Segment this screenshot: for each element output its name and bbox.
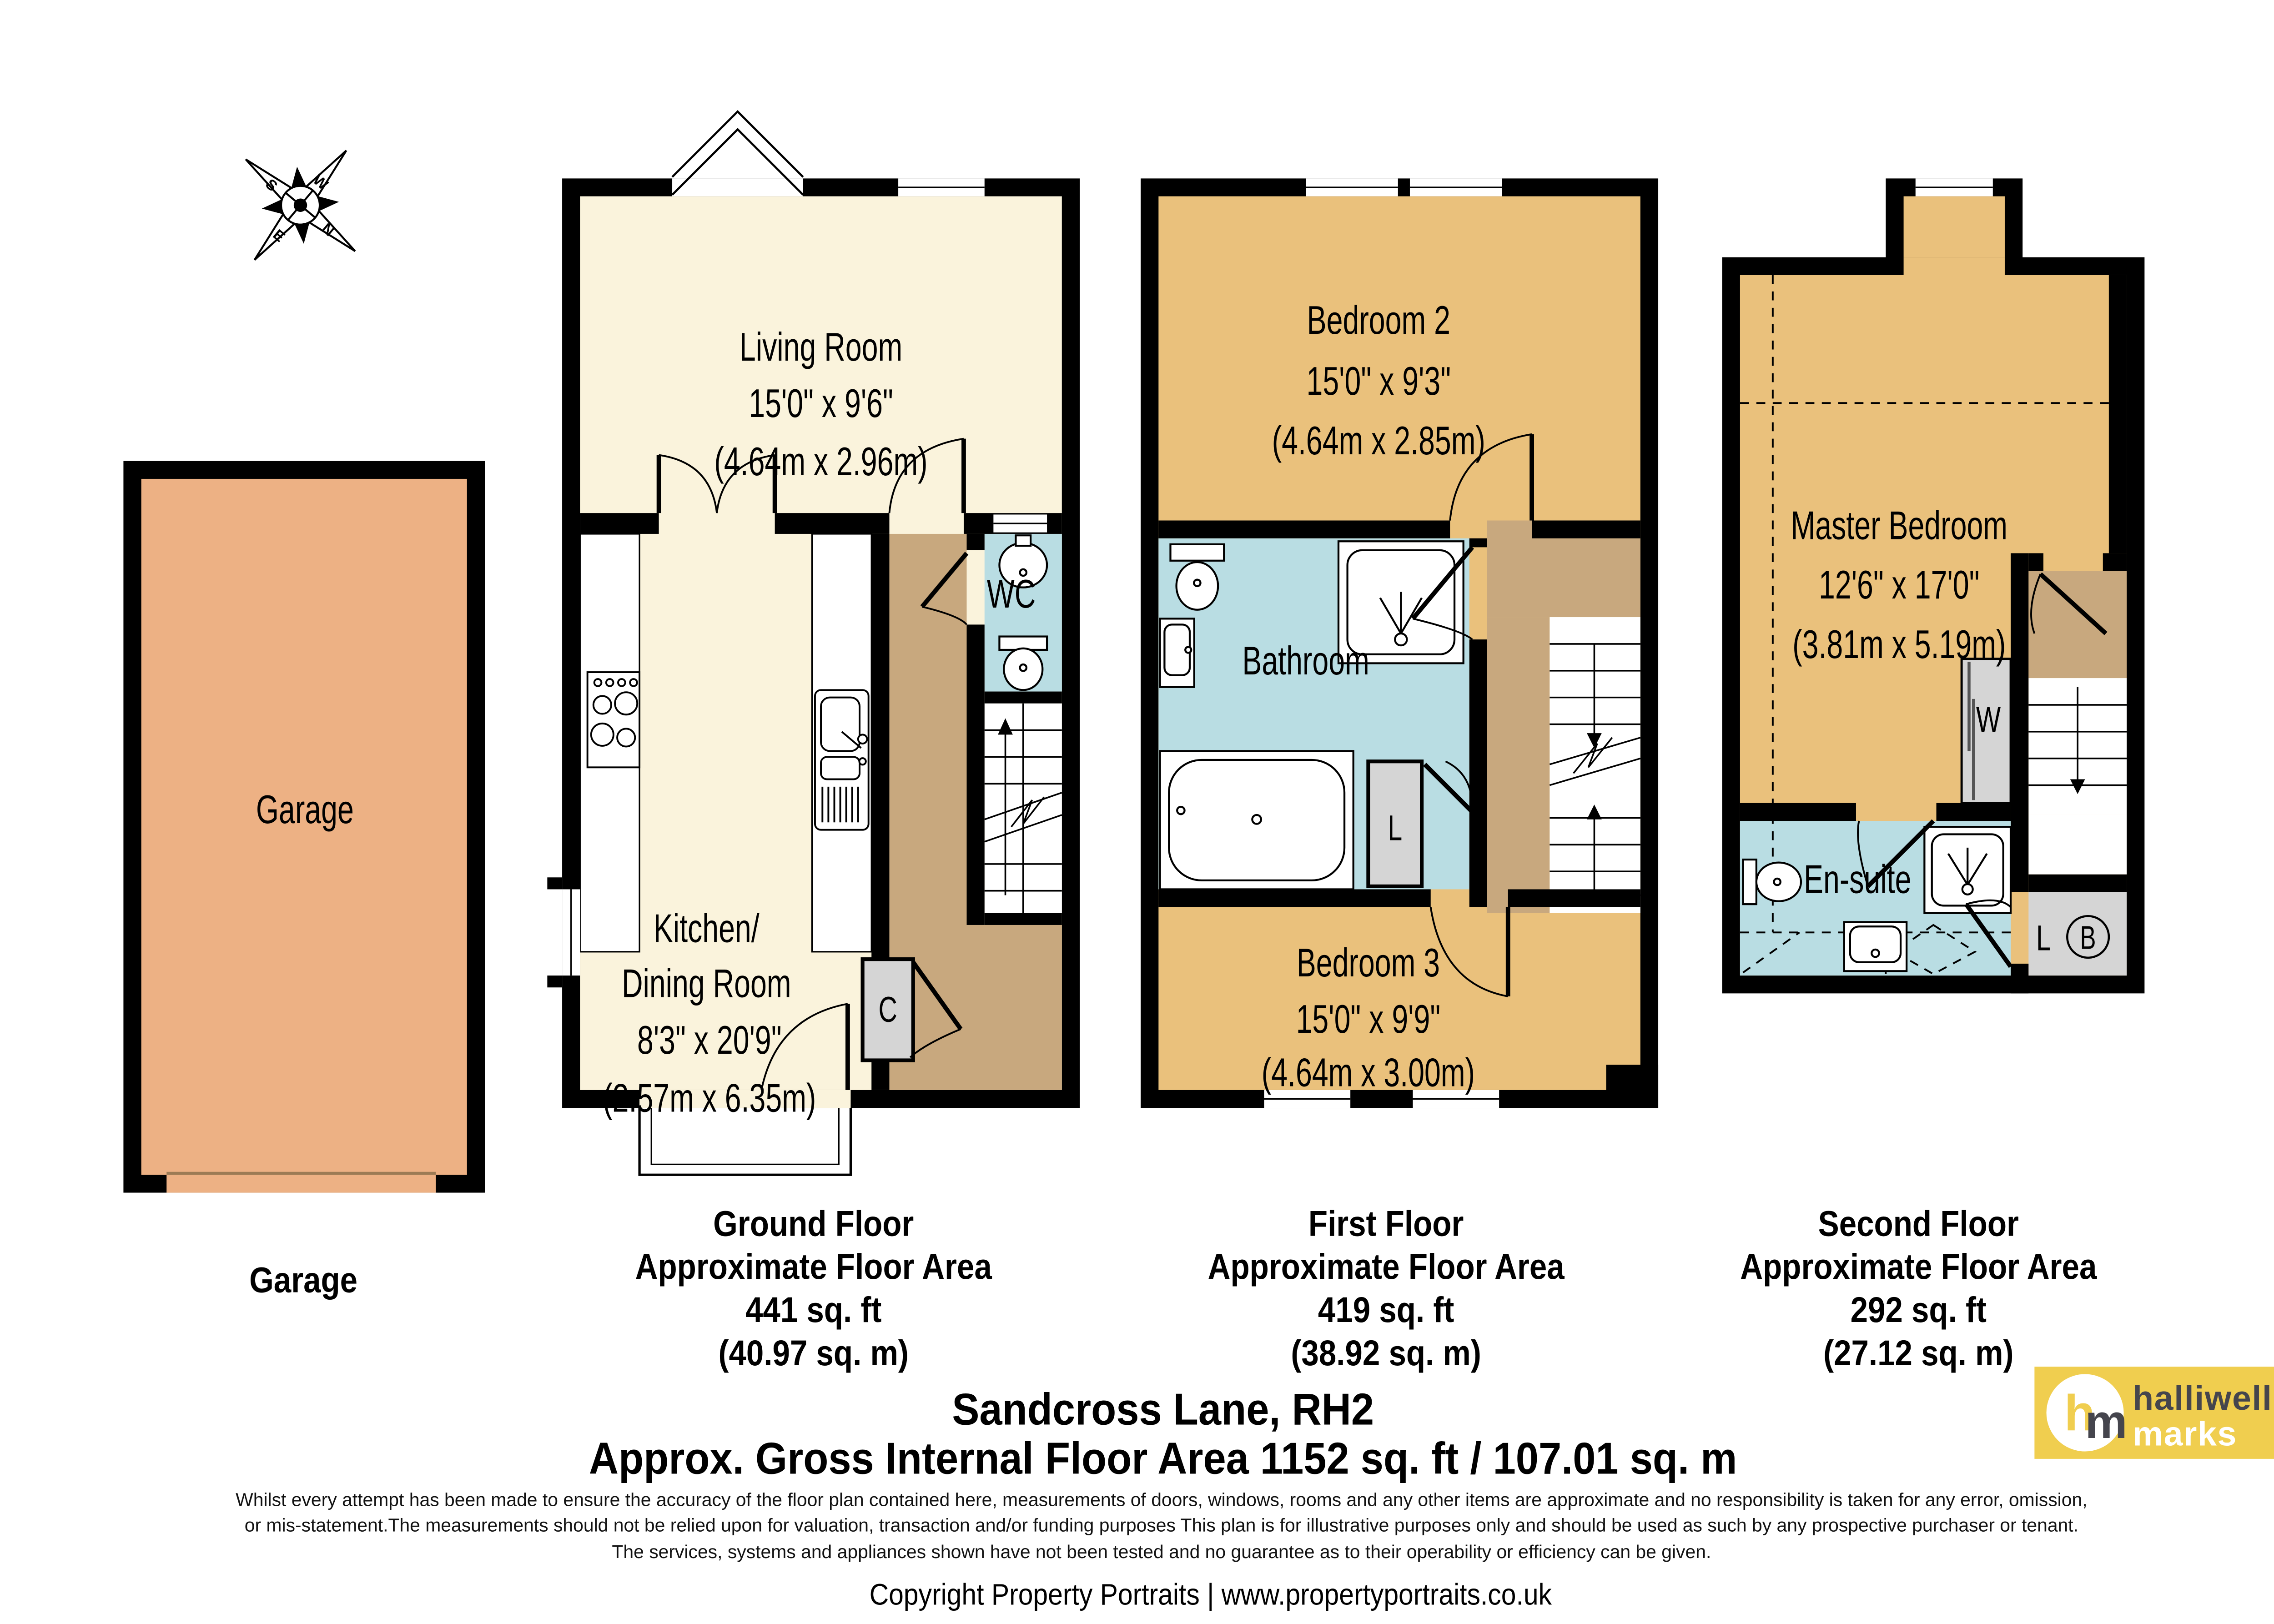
cupboard-l-first-label: L: [1385, 812, 1405, 847]
logo-name-line2: marks: [2133, 1414, 2237, 1454]
compass-rose: S W E N: [200, 105, 401, 306]
living-room-dims: 15'0" x 9'6": [722, 384, 920, 424]
second-caption-4: (27.12 sq. m): [1811, 1337, 2027, 1373]
boiler-b-label: B: [2077, 922, 2099, 955]
address-title: Sandcross Lane, RH2: [934, 1389, 1393, 1433]
ground-caption-4: (40.97 sq. m): [705, 1337, 921, 1373]
wardrobe-w-label: W: [1972, 704, 2005, 739]
halliwell-marks-logo: h m halliwell marks: [2034, 1367, 2274, 1459]
ground-caption-1: Ground Floor: [699, 1207, 927, 1243]
cupboard-l-second-label: L: [2033, 922, 2053, 957]
disclaimer-line-3: The services, systems and appliances sho…: [612, 1543, 1711, 1562]
logo-name-line1: halliwell: [2133, 1378, 2272, 1418]
ground-caption-2: Approximate Floor Area: [611, 1251, 1016, 1286]
disclaimer-line-1: Whilst every attempt has been made to en…: [236, 1491, 2087, 1510]
master-bedroom-dims: 12'6" x 17'0": [1789, 566, 2009, 606]
logo-circle-icon: h m: [2047, 1374, 2124, 1451]
kitchen-dims-metric: (2.57m x 6.35m): [563, 1079, 855, 1119]
kitchen-label-1: Kitchen/: [634, 910, 779, 950]
first-caption-1: First Floor: [1298, 1207, 1474, 1243]
master-bedroom-label: Master Bedroom: [1751, 506, 2048, 546]
master-bedroom-dims-metric: (3.81m x 5.19m): [1753, 625, 2045, 665]
bedroom2-dims: 15'0" x 9'3": [1280, 362, 1478, 402]
ensuite-label: En-suite: [1784, 860, 1931, 900]
bathroom-label: Bathroom: [1219, 642, 1393, 682]
second-caption-2: Approximate Floor Area: [1716, 1251, 2121, 1286]
kitchen-label-2: Dining Room: [590, 965, 822, 1005]
wc-label: WC: [978, 575, 1045, 615]
living-room-label: Living Room: [709, 328, 933, 368]
garage-caption: Garage: [242, 1264, 365, 1300]
bedroom2-label: Bedroom 2: [1280, 301, 1477, 341]
ground-floor-plan: [547, 111, 1080, 1175]
second-caption-1: Second Floor: [1805, 1207, 2033, 1243]
gross-area-title: Approx. Gross Internal Floor Area 1152 s…: [539, 1438, 1787, 1483]
bedroom3-label: Bedroom 3: [1270, 944, 1466, 984]
bedroom3-dims-metric: (4.64m x 3.00m): [1222, 1054, 1514, 1094]
ground-caption-3: 441 sq. ft: [736, 1294, 891, 1329]
first-caption-3: 419 sq. ft: [1309, 1294, 1464, 1329]
bedroom3-dims: 15'0" x 9'9": [1269, 1000, 1467, 1040]
logo-initial-m: m: [2085, 1395, 2128, 1450]
floorplan-page: S W E N: [0, 0, 2274, 1624]
living-room-dims-metric: (4.64m x 2.96m): [675, 442, 967, 483]
garage-room-label: Garage: [238, 790, 372, 830]
copyright-line: Copyright Property Portraits | www.prope…: [831, 1581, 1590, 1610]
first-caption-2: Approximate Floor Area: [1183, 1251, 1589, 1286]
bedroom2-dims-metric: (4.64m x 2.85m): [1233, 422, 1525, 462]
hob-icon: [588, 672, 639, 767]
cupboard-c-label: C: [875, 993, 901, 1029]
kitchen-dims: 8'3" x 20'9": [610, 1021, 808, 1061]
disclaimer-line-2: or mis-statement.The measurements should…: [245, 1517, 2078, 1535]
second-caption-3: 292 sq. ft: [1841, 1294, 1996, 1329]
first-caption-4: (38.92 sq. m): [1278, 1337, 1494, 1373]
kitchen-sink-icon: [815, 690, 869, 830]
